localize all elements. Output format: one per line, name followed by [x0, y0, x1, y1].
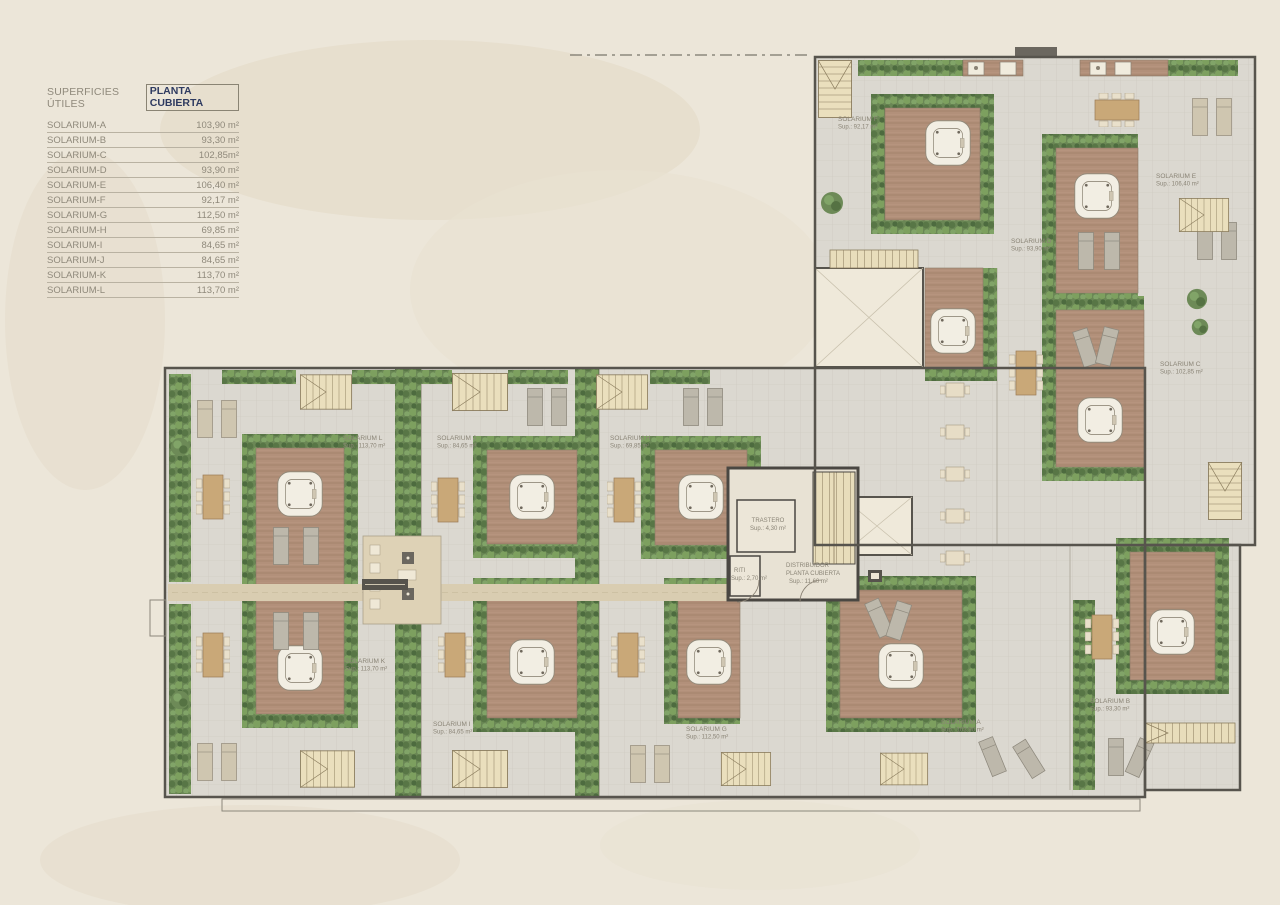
legend-row-solarium-j: SOLARIUM-J84,65 m² [47, 253, 239, 268]
svg-text:RITI: RITI [734, 568, 746, 574]
svg-text:DISTRIBUIDOR: DISTRIBUIDOR [786, 563, 830, 569]
legend-row-solarium-b: SOLARIUM-B93,30 m² [47, 133, 239, 148]
svg-text:SOLARIUM L: SOLARIUM L [343, 435, 383, 442]
legend-plan-name: PLANTA CUBIERTA [146, 84, 239, 111]
svg-text:SOLARIUM K: SOLARIUM K [345, 658, 386, 665]
svg-text:Sup.: 112,50 m²: Sup.: 112,50 m² [686, 735, 728, 741]
svg-text:SOLARIUM C: SOLARIUM C [1160, 361, 1201, 368]
svg-text:Sup.: 93,30 m²: Sup.: 93,30 m² [1090, 707, 1129, 713]
legend-row-solarium-d: SOLARIUM-D93,90 m² [47, 163, 239, 178]
svg-text:SOLARIUM I: SOLARIUM I [433, 721, 471, 728]
svg-text:SOLARIUM J: SOLARIUM J [437, 435, 476, 442]
svg-text:Sup.: 84,65 m²: Sup.: 84,65 m² [437, 444, 476, 450]
legend-header: SUPERFICIES ÚTILES PLANTA CUBIERTA [47, 84, 239, 111]
svg-text:TRASTERO: TRASTERO [752, 518, 785, 524]
svg-text:Sup.: 92,17 m²: Sup.: 92,17 m² [838, 125, 877, 131]
svg-text:Sup.: 106,40 m²: Sup.: 106,40 m² [1156, 182, 1199, 188]
legend-row-solarium-e: SOLARIUM-E106,40 m² [47, 178, 239, 193]
svg-text:SOLARIUM F: SOLARIUM F [838, 116, 878, 123]
roof-plan-sheet: SOLARIUM LSup.: 113,70 m² SOLARIUM JSup.… [0, 0, 1280, 905]
legend-row-solarium-f: SOLARIUM-F92,17 m² [47, 193, 239, 208]
svg-text:Sup.: 69,85 m²: Sup.: 69,85 m² [610, 444, 649, 450]
legend-row-solarium-i: SOLARIUM-I84,65 m² [47, 238, 239, 253]
svg-text:Sup.: 102,85 m²: Sup.: 102,85 m² [1160, 370, 1203, 376]
svg-text:Sup.: 113,70 m²: Sup.: 113,70 m² [343, 444, 385, 450]
legend-row-solarium-l: SOLARIUM-L113,70 m² [47, 283, 239, 298]
svg-text:Sup.: 103,90 m²: Sup.: 103,90 m² [941, 728, 984, 734]
svg-text:Sup.: 4,30 m²: Sup.: 4,30 m² [750, 526, 786, 532]
svg-text:SOLARIUM A: SOLARIUM A [941, 719, 981, 726]
svg-text:Sup.: 2,70 m²: Sup.: 2,70 m² [731, 576, 767, 582]
svg-text:SOLARIUM D: SOLARIUM D [1011, 238, 1052, 245]
svg-text:Sup.: 11,60 m²: Sup.: 11,60 m² [789, 579, 828, 585]
svg-text:Sup.: 84,65 m²: Sup.: 84,65 m² [433, 730, 472, 736]
svg-text:PLANTA CUBIERTA: PLANTA CUBIERTA [786, 571, 840, 577]
svg-text:SOLARIUM B: SOLARIUM B [1090, 698, 1130, 705]
legend-row-solarium-c: SOLARIUM-C102,85m² [47, 148, 239, 163]
legend-row-solarium-g: SOLARIUM-G112,50 m² [47, 208, 239, 223]
legend-row-solarium-h: SOLARIUM-H69,85 m² [47, 223, 239, 238]
legend-title: SUPERFICIES ÚTILES [47, 86, 146, 110]
areas-legend: SUPERFICIES ÚTILES PLANTA CUBIERTA SOLAR… [47, 84, 239, 298]
legend-row-solarium-a: SOLARIUM-A103,90 m² [47, 118, 239, 133]
svg-text:SOLARIUM G: SOLARIUM G [686, 726, 727, 733]
svg-text:SOLARIUM E: SOLARIUM E [1156, 173, 1197, 180]
svg-text:Sup.: 113,70 m²: Sup.: 113,70 m² [345, 667, 387, 673]
svg-text:Sup.: 93,90 m²: Sup.: 93,90 m² [1011, 247, 1050, 253]
legend-row-solarium-k: SOLARIUM-K113,70 m² [47, 268, 239, 283]
svg-text:SOLARIUM H: SOLARIUM H [610, 435, 651, 442]
